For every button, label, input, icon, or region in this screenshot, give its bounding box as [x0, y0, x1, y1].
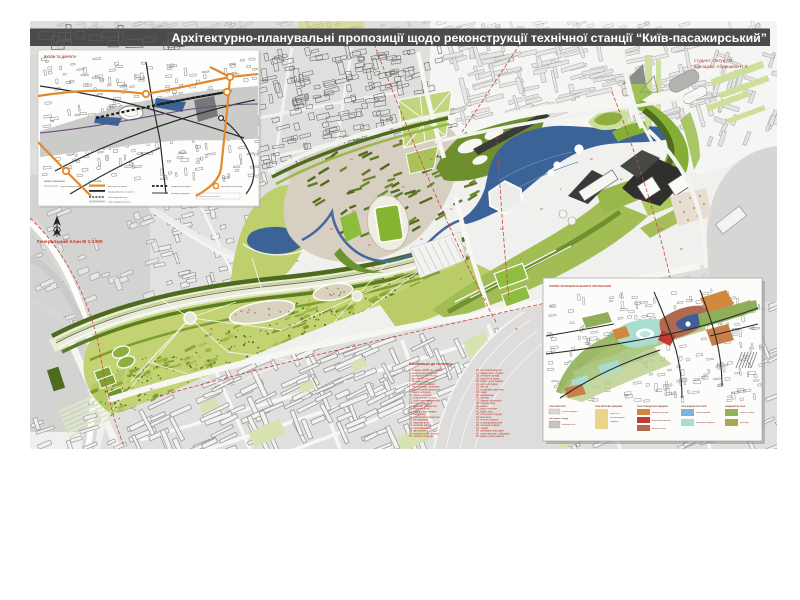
svg-text:Генеральний план М 1:1000: Генеральний план М 1:1000: [37, 238, 103, 245]
svg-text:Архітектурно-планувальні пропо: Архітектурно-планувальні пропозиції щодо…: [172, 31, 768, 45]
svg-text:студент: Лигун І.В.: студент: Лигун І.В.: [694, 58, 733, 63]
svg-text:швидкісний трамвай: швидкісний трамвай: [171, 185, 192, 188]
svg-text:смуга відводу залізниці: смуга відводу залізниці: [108, 201, 131, 204]
svg-text:ЗОНА ВОДНИХ ПРОСТОРІВ: ЗОНА ВОДНИХ ПРОСТОРІВ: [681, 405, 707, 408]
svg-text:садибна та: садибна та: [610, 413, 621, 415]
svg-text:пішохідні маршрути: пішохідні маршрути: [171, 192, 191, 195]
svg-text:50. межа проектування: 50. межа проектування: [476, 434, 504, 438]
svg-text:транспортні розв’язки: транспортні розв’язки: [221, 185, 243, 188]
svg-text:ЗОНА ГРОМАДСЬКОЇ ЗАБУДОВИ: ЗОНА ГРОМАДСЬКОЇ ЗАБУДОВИ: [637, 405, 669, 408]
svg-text:вулиці районного значення: вулиці районного значення: [108, 191, 134, 194]
svg-text:ЛАНДШАФТНА ЗОНА: ЛАНДШАФТНА ЗОНА: [725, 405, 746, 408]
svg-text:багатоповерхова: багатоповерхова: [610, 417, 626, 419]
svg-text:ЗОНА ЖИТЛОВОЇ ЗАБУДОВИ: ЗОНА ЖИТЛОВОЇ ЗАБУДОВИ: [595, 405, 623, 408]
svg-text:зупинки громадського: зупинки громадського: [199, 196, 221, 198]
svg-text:СХЕМА ФУНКЦІОНАЛЬНОГО ЗОНУВАНН: СХЕМА ФУНКЦІОНАЛЬНОГО ЗОНУВАННЯ: [549, 284, 611, 288]
svg-text:залізничні колії: залізничні колії: [562, 423, 576, 426]
svg-text:зона трансп. споруд: зона трансп. споруд: [549, 418, 569, 420]
svg-text:магістральні вулиці: магістральні вулиці: [108, 185, 127, 188]
svg-text:умовні позначення:: умовні позначення:: [44, 180, 66, 183]
svg-text:25. технічні споруди: 25. технічні споруди: [409, 434, 434, 438]
svg-text:вокзальний комплекс: вокзальний комплекс: [652, 419, 671, 422]
svg-text:нові шляхи:: нові шляхи:: [89, 180, 102, 183]
svg-text:викладач: Абрашина Н.Л.: викладач: Абрашина Н.Л.: [694, 64, 749, 69]
svg-text:Експлікація до генплану: Експлікація до генплану: [409, 362, 452, 366]
svg-text:лугопарки: лугопарки: [740, 422, 749, 424]
svg-text:ВУЗЛИ ТА ДОРОГИ: ВУЗЛИ ТА ДОРОГИ: [44, 55, 76, 59]
svg-text:забудова: забудова: [610, 421, 619, 423]
svg-text:існуюча мережа доріг: існуюча мережа доріг: [60, 185, 81, 188]
svg-text:існуючі водойми: існуючі водойми: [696, 411, 710, 414]
svg-text:ділові установи: ділові установи: [652, 427, 666, 430]
svg-text:лінія метрополітену: лінія метрополітену: [108, 196, 128, 199]
svg-text:парки та сквери: парки та сквери: [740, 412, 754, 414]
svg-text:проектовані водойми: проектовані водойми: [696, 421, 715, 424]
svg-text:громадські центри: громадські центри: [652, 411, 668, 414]
svg-text:ЗОНА ТЕРИТОРІЙ: ЗОНА ТЕРИТОРІЙ: [549, 405, 566, 408]
svg-text:існуюча забудова: існуюча забудова: [562, 410, 578, 413]
